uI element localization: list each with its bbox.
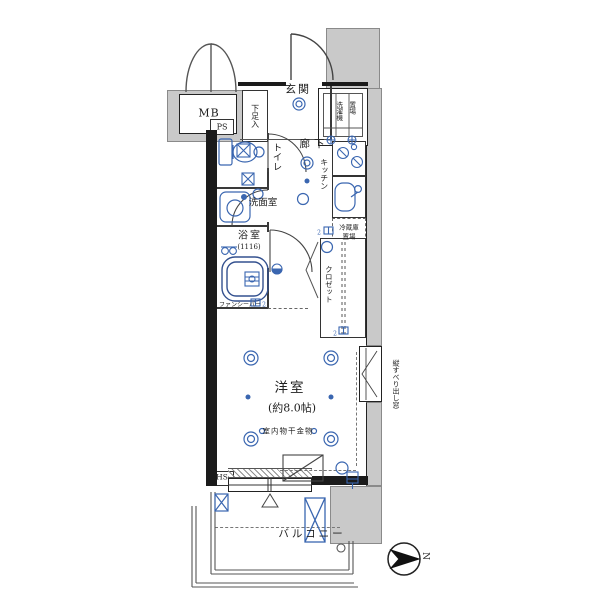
label-bathroom: 浴室 [238, 230, 262, 242]
label-washer-col2: 置場 [347, 102, 354, 115]
label-main-room: 洋室 [275, 381, 306, 397]
label-mb: MB [198, 108, 219, 121]
label-kitchen: キッチン [319, 158, 328, 190]
label-main-room-size: (約8.0帖) [268, 403, 316, 416]
stove-burner-icons [338, 144, 363, 167]
half-circle-switch [272, 264, 282, 274]
label-entrance: 玄関 [285, 84, 311, 97]
label-outlet2-closet: 2 [333, 332, 337, 339]
mainroom-door [270, 230, 312, 272]
label-north: N [420, 552, 430, 560]
south-window-mullion [228, 478, 312, 492]
balcony-hatch-mark-small [215, 494, 228, 511]
label-fan-bar: ファンシーバー [219, 303, 261, 310]
bath-faucet-icon [221, 247, 237, 254]
label-fridge-line2: 置場 [343, 233, 356, 240]
toilet-fixture [219, 139, 257, 165]
washer-faucet-icons [327, 136, 356, 144]
bath-drain-icon [245, 272, 259, 286]
label-shoe-cabinet: 下足入 [250, 104, 259, 128]
room-counter [283, 455, 323, 481]
label-outlet2-fridge: 2 [317, 231, 321, 238]
label-balcony: バルコニー [278, 528, 345, 540]
washer-grid [323, 93, 363, 137]
label-hs: HS [216, 474, 228, 483]
window-center-mark [262, 494, 278, 507]
casement-open-mark [362, 348, 377, 400]
label-washroom: 洗面室 [249, 199, 278, 210]
entrance-door [291, 34, 333, 80]
label-toilet: トイレ [270, 143, 281, 172]
label-outlet2-fanbar: 2 [262, 303, 266, 310]
label-hallway: 廊下 [300, 138, 329, 150]
compass-icon [388, 543, 420, 575]
vent-symbols [237, 144, 254, 185]
floorplan-canvas: MB PS HS 玄関 下足入 トイレ 廊下 キッチン 洗濯機 置場 洗面室 浴… [0, 0, 605, 600]
label-closet: クロゼット [324, 265, 333, 303]
switch-dot-symbols [246, 179, 334, 400]
label-laundry-fitting: 室内物干金物 [263, 428, 314, 437]
label-ps: PS [217, 122, 228, 131]
label-fridge-line1: 冷蔵庫 [339, 224, 359, 231]
closet-hanger-pipe [342, 242, 345, 334]
kitchen-sink-icon [335, 183, 361, 211]
washbasin-fixture [220, 192, 250, 222]
mb-double-door [186, 44, 236, 92]
label-washer-col1: 洗濯機 [334, 101, 341, 121]
label-bathroom-size: (1116) [237, 243, 260, 251]
label-casement-window: 縦すべり出し窓 [392, 360, 400, 409]
